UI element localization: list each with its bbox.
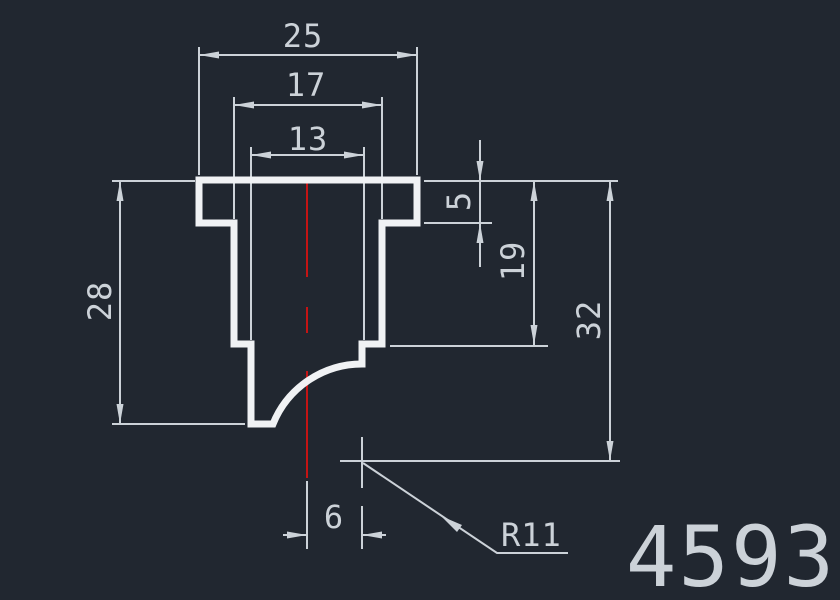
dim-5-label: 5 — [440, 191, 478, 211]
drawing-viewport[interactable]: 25 17 13 28 5 — [0, 0, 840, 600]
part-number: 4593 — [626, 508, 836, 600]
cad-canvas[interactable]: 25 17 13 28 5 — [0, 0, 840, 600]
dim-6-label: 6 — [324, 498, 344, 536]
dim-32-label: 32 — [570, 300, 608, 341]
dim-28-label: 28 — [81, 281, 119, 322]
dim-25-label: 25 — [283, 17, 324, 55]
dim-r11-label: R11 — [501, 516, 562, 554]
dim-17-label: 17 — [286, 66, 327, 104]
dim-19-label: 19 — [494, 241, 532, 282]
dim-13-label: 13 — [288, 120, 329, 158]
